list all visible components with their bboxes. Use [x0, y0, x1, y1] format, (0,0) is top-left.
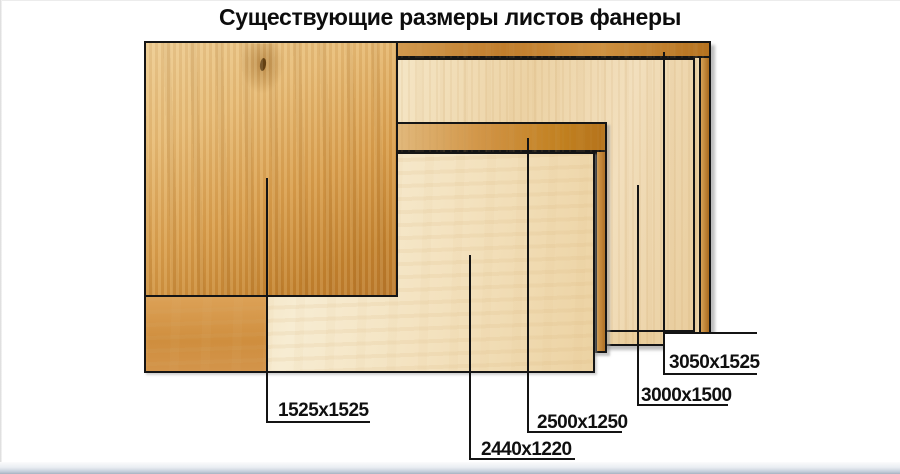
diagram-title: Существующие размеры листов фанеры — [0, 4, 900, 31]
sheet-3050x1525-side-edge — [699, 56, 711, 346]
sheet-2500x1250-top-edge — [392, 122, 607, 152]
plywood-sizes-diagram: Существующие размеры листов фанеры 1525x… — [0, 0, 900, 474]
size-label-1525x1525: 1525x1525 — [278, 400, 369, 422]
size-label-2500x1250: 2500x1250 — [537, 412, 628, 434]
size-label-3050x1525: 3050x1525 — [669, 352, 760, 374]
bottom-gradient-bar — [0, 462, 900, 474]
callout-line-1525x1525 — [266, 178, 268, 423]
sheet-1525x1525 — [144, 41, 398, 297]
sheet-2440x1220-dark-grain-patch — [146, 297, 268, 371]
size-label-2440x1220: 2440x1220 — [481, 439, 572, 461]
callout-line-3000x1500 — [637, 185, 639, 406]
callout-line-2440x1220 — [469, 255, 471, 460]
left-edge-line — [0, 0, 2, 474]
callout-line-3050x1525 — [663, 52, 665, 375]
sheet-2500x1250-side-edge — [595, 150, 607, 353]
top-edge-line — [0, 0, 900, 1]
callout-line-2500x1250 — [527, 138, 529, 433]
size-label-3000x1500: 3000x1500 — [641, 385, 732, 407]
